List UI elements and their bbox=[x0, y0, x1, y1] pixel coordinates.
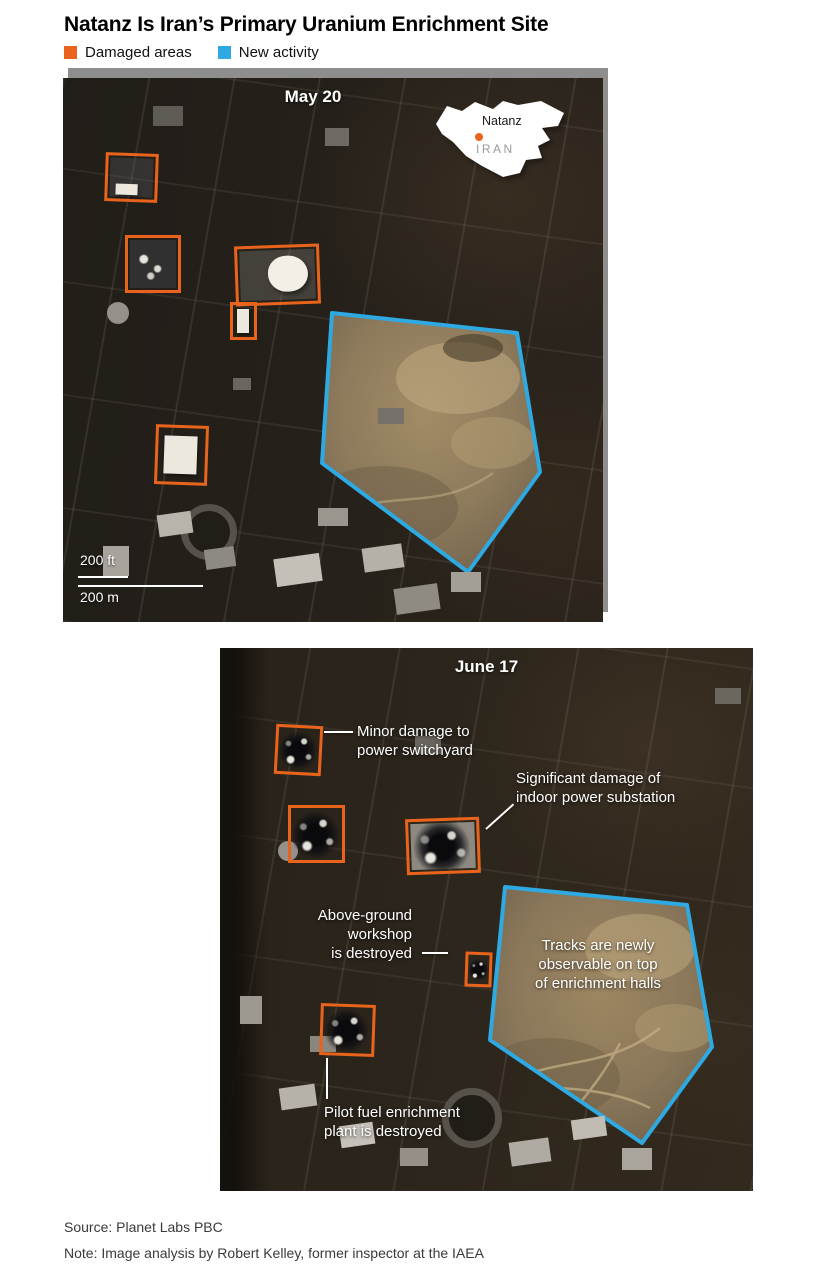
damaged-box-power-switchyard bbox=[274, 724, 324, 776]
burn-mark bbox=[279, 729, 318, 771]
substation-pad bbox=[130, 240, 176, 288]
page-title: Natanz Is Iran’s Primary Uranium Enrichm… bbox=[64, 13, 548, 37]
building bbox=[237, 309, 249, 333]
annotation-tracks: Tracks are newly observable on top of en… bbox=[518, 936, 678, 993]
scale-ft-label: 200 ft bbox=[80, 552, 115, 568]
satellite-photo-june-17: June 17 Minor damage to power switchyard… bbox=[220, 648, 753, 1191]
iran-locator-map: Natanz IRAN bbox=[427, 93, 573, 195]
building bbox=[163, 435, 198, 475]
building bbox=[400, 1148, 428, 1166]
building bbox=[153, 106, 183, 126]
scale-bar: 200 ft 200 m bbox=[78, 552, 208, 612]
annotation-substation: Significant damage of indoor power subst… bbox=[516, 769, 716, 807]
building bbox=[204, 546, 236, 570]
damaged-box-workshop bbox=[464, 952, 492, 988]
new-activity-label: New activity bbox=[239, 44, 319, 61]
scale-m-label: 200 m bbox=[80, 589, 119, 605]
building bbox=[622, 1148, 652, 1170]
leader-line-switchyard bbox=[324, 731, 353, 733]
footer: Source: Planet Labs PBC Note: Image anal… bbox=[64, 1214, 484, 1266]
damaged-box-power-substation-yard bbox=[288, 805, 345, 863]
building bbox=[378, 408, 404, 424]
damaged-box-pilot-plant bbox=[154, 424, 209, 486]
building bbox=[451, 572, 481, 592]
building bbox=[157, 511, 194, 538]
building bbox=[325, 128, 349, 146]
damaged-box-workshop bbox=[230, 302, 257, 340]
building bbox=[715, 688, 741, 704]
natanz-label: Natanz bbox=[482, 114, 522, 128]
legend: Damaged areas New activity bbox=[64, 44, 319, 61]
damaged-box-power-substation-yard bbox=[125, 235, 181, 293]
natanz-location-dot bbox=[475, 133, 483, 141]
scale-ft-line bbox=[78, 576, 128, 578]
burn-mark bbox=[410, 822, 476, 870]
annotation-switchyard: Minor damage to power switchyard bbox=[357, 722, 497, 760]
scale-m-line bbox=[78, 585, 203, 587]
note-line: Note: Image analysis by Robert Kelley, f… bbox=[64, 1240, 484, 1266]
annotation-pilot-plant: Pilot fuel enrichment plant is destroyed bbox=[324, 1103, 494, 1141]
damaged-box-power-switchyard bbox=[104, 152, 159, 203]
annotation-workshop: Above-ground workshop is destroyed bbox=[300, 906, 412, 963]
infographic: Natanz Is Iran’s Primary Uranium Enrichm… bbox=[0, 0, 834, 1280]
damaged-box-indoor-substation bbox=[234, 244, 321, 307]
storage-tank bbox=[107, 302, 129, 324]
damaged-box-indoor-substation bbox=[405, 817, 481, 876]
building bbox=[240, 996, 262, 1024]
damaged-areas-label: Damaged areas bbox=[85, 44, 192, 61]
satellite-photo-may-20: May 20 Natanz IRAN 200 ft 200 m bbox=[63, 78, 603, 622]
source-line: Source: Planet Labs PBC bbox=[64, 1214, 484, 1240]
leader-line-pilot-plant bbox=[326, 1058, 328, 1099]
building bbox=[233, 378, 251, 390]
building bbox=[318, 508, 348, 526]
new-activity-swatch bbox=[218, 46, 231, 59]
photo-date-label: June 17 bbox=[220, 657, 753, 677]
leader-line-workshop bbox=[422, 952, 448, 954]
damaged-areas-swatch bbox=[64, 46, 77, 59]
burn-mark bbox=[293, 810, 340, 858]
burn-mark bbox=[324, 1008, 370, 1052]
iran-label: IRAN bbox=[476, 142, 515, 156]
damaged-box-pilot-plant bbox=[319, 1003, 376, 1057]
burn-mark bbox=[470, 957, 488, 983]
building bbox=[116, 184, 137, 195]
